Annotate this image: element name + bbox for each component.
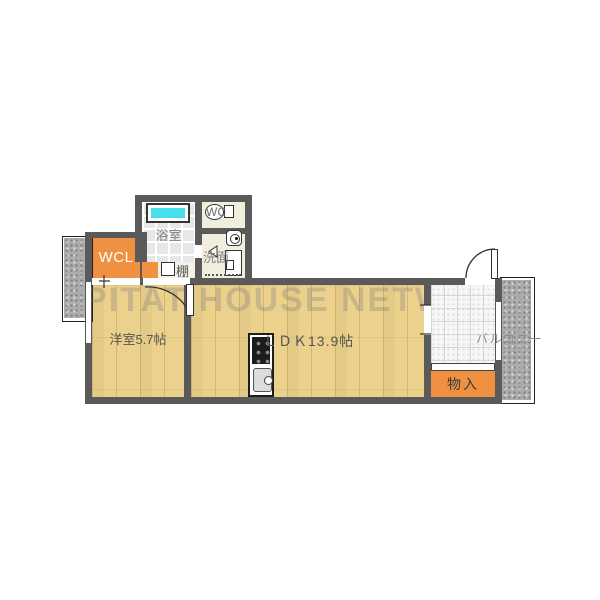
western-room-label: 洋室5.7帖 [92,329,184,348]
balcony-label: バルコニー [476,330,543,347]
toilet-label: WC [206,205,226,219]
ldk-label: ＬＤＫ13.9帖 [263,331,354,351]
walk-in-closet-label: WCL [92,238,140,278]
hall-door-leaf [187,285,194,316]
entrance-door-leaf [492,250,498,279]
shelf-label: 棚 [176,261,189,280]
entrance-door-arc [466,249,495,278]
bathroom-label: 浴室 [142,225,195,244]
door-swing-overlay [0,0,600,600]
storage-label: 物入 [431,374,495,394]
washroom-label: 洗面 [203,247,229,266]
hall-door-arc [145,287,190,314]
floor-plan: PITAT HOUSE NETWORK [0,0,600,600]
